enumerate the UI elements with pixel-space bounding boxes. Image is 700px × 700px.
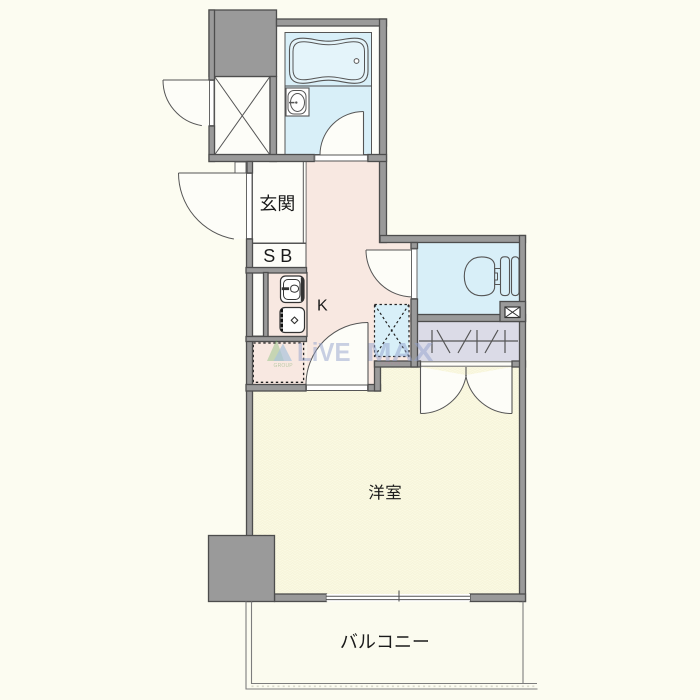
svg-text:LiVE: LiVE xyxy=(297,339,351,367)
svg-text:S B: S B xyxy=(263,246,292,266)
svg-text:GROUP: GROUP xyxy=(274,363,294,369)
svg-text:MAX: MAX xyxy=(367,339,434,367)
svg-text:K: K xyxy=(317,298,328,315)
